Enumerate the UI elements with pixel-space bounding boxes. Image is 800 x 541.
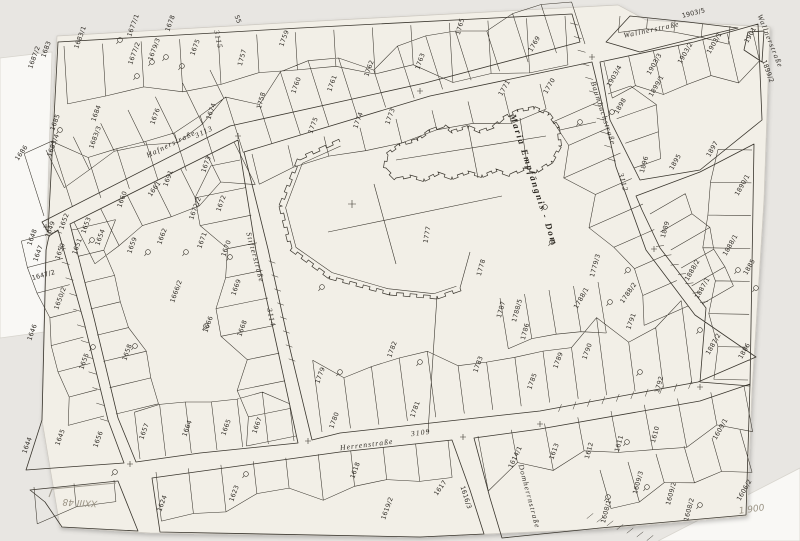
scanned-map-photo: Katastralmappe – Maria Empfängnis - Dom …: [0, 0, 800, 541]
pencil-note: XXIII 48: [62, 496, 98, 508]
under-sheet-left: [0, 52, 52, 338]
cadastral-map-sheet: Katastralmappe – Maria Empfängnis - Dom …: [0, 0, 800, 541]
